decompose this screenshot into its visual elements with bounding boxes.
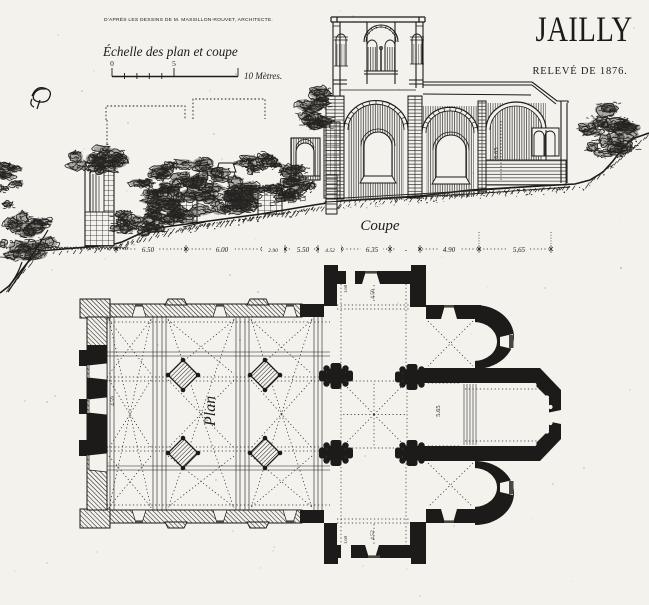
svg-text:5.65: 5.65 bbox=[435, 405, 442, 416]
svg-text:4.52: 4.52 bbox=[325, 247, 335, 254]
svg-text:0: 0 bbox=[110, 59, 114, 68]
svg-text:6.65: 6.65 bbox=[493, 147, 500, 158]
svg-text:1.60: 1.60 bbox=[343, 284, 348, 293]
svg-text:1.60: 1.60 bbox=[343, 535, 348, 544]
svg-text:4.59: 4.59 bbox=[110, 396, 116, 406]
svg-text:Coupe: Coupe bbox=[360, 218, 400, 234]
svg-text:2.90: 2.90 bbox=[268, 248, 278, 254]
svg-text:5,65: 5,65 bbox=[513, 246, 526, 254]
svg-text:Échelle des plan et coupe: Échelle des plan et coupe bbox=[102, 44, 238, 59]
svg-text:6.00: 6.00 bbox=[216, 246, 229, 254]
svg-text:6.50: 6.50 bbox=[142, 246, 155, 254]
svg-text:RELEVÉ DE 1876.: RELEVÉ DE 1876. bbox=[532, 65, 627, 77]
svg-text:6.35: 6.35 bbox=[366, 246, 379, 254]
svg-text:JAILLY: JAILLY bbox=[535, 10, 632, 50]
svg-text:D'APRÈS LES DESSINS DE M. MASS: D'APRÈS LES DESSINS DE M. MASSILLON-ROUV… bbox=[104, 16, 273, 23]
svg-text:4.52: 4.52 bbox=[370, 530, 376, 540]
svg-text:10 Mètres.: 10 Mètres. bbox=[244, 71, 282, 81]
svg-text:5: 5 bbox=[172, 59, 176, 68]
svg-text:4.50: 4.50 bbox=[370, 289, 376, 299]
svg-text:4.90: 4.90 bbox=[443, 246, 456, 254]
svg-text:Plan: Plan bbox=[202, 396, 219, 427]
svg-text:5.50: 5.50 bbox=[297, 246, 310, 254]
